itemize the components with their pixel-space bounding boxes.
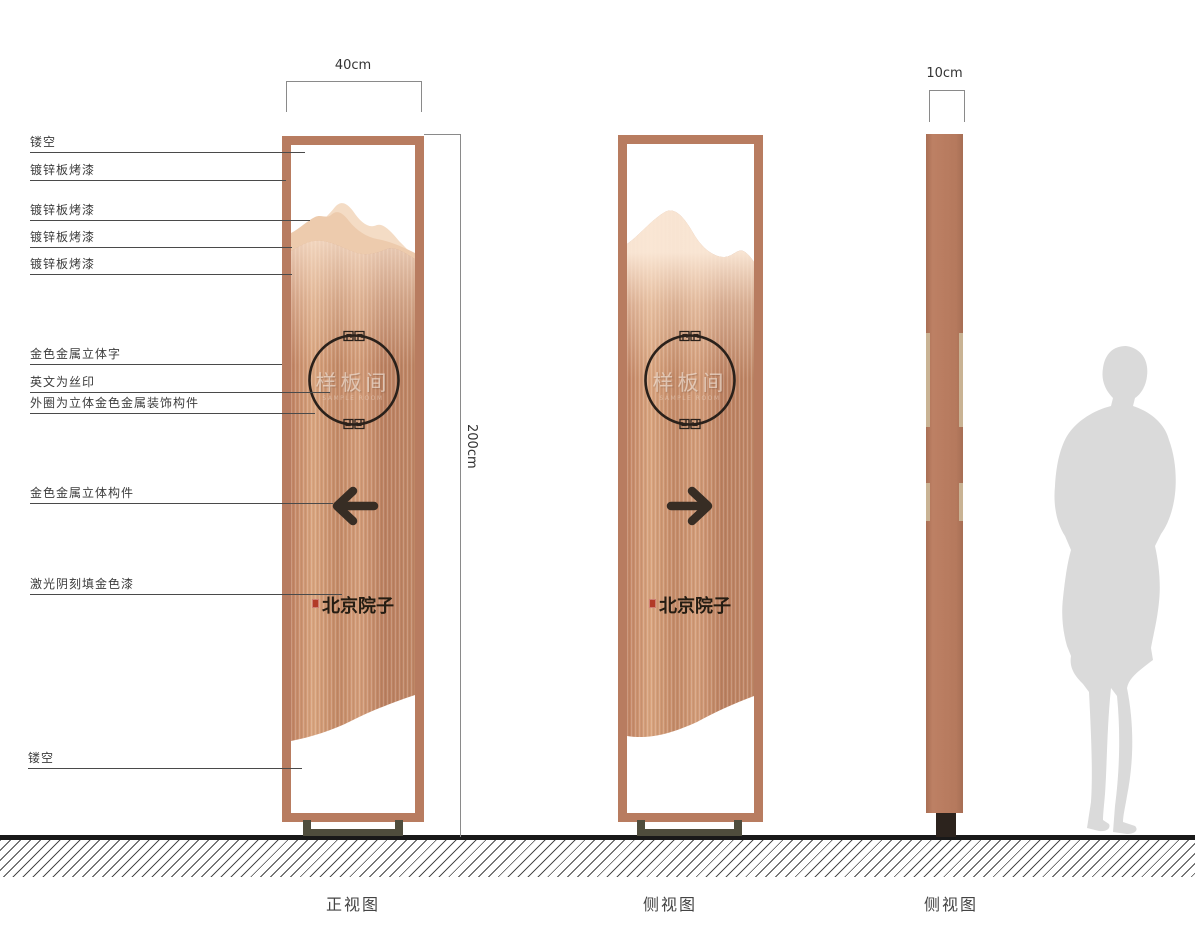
base-bar	[637, 829, 742, 836]
scale-figure-silhouette	[1043, 336, 1179, 836]
annotation-label: 镂空	[30, 133, 56, 150]
arrow-right-icon	[665, 484, 717, 528]
leader-line	[30, 274, 292, 275]
brand-calligraphy: 北京院子	[303, 592, 403, 618]
dimension-height-line	[460, 134, 461, 837]
arrow-left-icon	[328, 484, 380, 528]
signage-front-view: 样板间 SAMPLE ROOM 北京院子	[282, 136, 424, 822]
leader-line	[30, 180, 286, 181]
annotation-label: 镀锌板烤漆	[30, 255, 95, 272]
signage-profile-view	[926, 134, 963, 813]
ground-hatch	[0, 840, 1195, 877]
leader-line	[30, 364, 282, 365]
dimension-total-height: 200cm	[464, 424, 479, 469]
view-caption-front: 正视图	[303, 891, 403, 915]
profile-fitting-strip	[926, 483, 930, 521]
annotation-label: 激光阴刻填金色漆	[30, 575, 134, 592]
dimension-bracket	[929, 90, 965, 122]
room-name-english-text: SAMPLE ROOM	[303, 395, 403, 402]
leader-line	[30, 247, 292, 248]
profile-base-block	[936, 813, 956, 837]
dimension-bracket	[286, 81, 422, 112]
annotation-label: 镀锌板烤漆	[30, 228, 95, 245]
profile-fitting-strip	[959, 333, 963, 427]
red-seal-icon	[312, 599, 319, 608]
room-name-text: 样板间	[640, 367, 740, 397]
panel-texture-side	[627, 144, 754, 813]
brand-name-text: 北京院子	[659, 596, 731, 617]
leader-line	[30, 220, 310, 221]
profile-fitting-strip	[926, 333, 930, 427]
ground-line	[0, 835, 1195, 840]
leader-line	[30, 152, 305, 153]
annotation-label: 镀锌板烤漆	[30, 201, 95, 218]
view-caption-side: 侧视图	[620, 891, 720, 915]
signage-side-view: 样板间 SAMPLE ROOM 北京院子	[618, 135, 763, 822]
leader-line	[30, 594, 342, 595]
dimension-front-width: 40cm	[286, 58, 420, 73]
panel-texture-front	[291, 145, 415, 813]
dimension-side-width: 10cm	[926, 66, 963, 81]
profile-fitting-strip	[959, 483, 963, 521]
leader-line	[30, 413, 315, 414]
leader-line	[30, 503, 333, 504]
annotation-label: 英文为丝印	[30, 373, 95, 390]
drawing-canvas: 镂空 镀锌板烤漆 镀锌板烤漆 镀锌板烤漆 镀锌板烤漆 金色金属立体字 英文为丝印…	[0, 0, 1195, 927]
annotation-label: 金色金属立体字	[30, 345, 121, 362]
annotation-label: 镂空	[28, 749, 54, 766]
annotation-label: 金色金属立体构件	[30, 484, 134, 501]
annotation-label: 镀锌板烤漆	[30, 161, 95, 178]
leader-line	[28, 768, 302, 769]
brand-name-text: 北京院子	[322, 596, 394, 617]
base-bar	[303, 829, 403, 836]
dimension-connector	[424, 134, 460, 135]
brand-calligraphy: 北京院子	[640, 592, 740, 618]
room-name-english-text: SAMPLE ROOM	[640, 395, 740, 402]
annotation-label: 外圈为立体金色金属装饰构件	[30, 394, 199, 411]
red-seal-icon	[649, 599, 656, 608]
leader-line	[30, 392, 330, 393]
view-caption-profile: 侧视图	[901, 891, 1001, 915]
